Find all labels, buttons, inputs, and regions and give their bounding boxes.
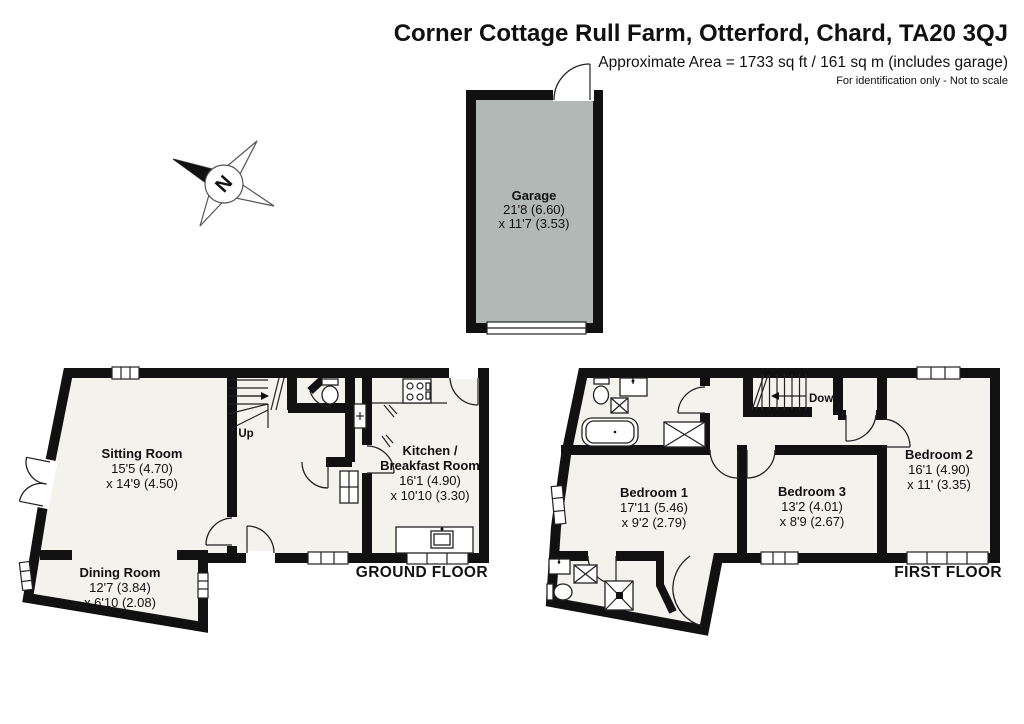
page-title: Corner Cottage Rull Farm, Otterford, Cha… [394, 20, 1008, 47]
garage-main-door [487, 322, 586, 334]
ensuite-shower-icon [605, 581, 633, 610]
bathroom-basin-icon [620, 378, 647, 396]
header: Corner Cottage Rull Farm, Otterford, Cha… [394, 20, 1008, 87]
sitting-room-name: Sitting Room [102, 446, 183, 461]
back-door-opening [449, 366, 478, 379]
garage-name: Garage [512, 188, 557, 203]
kitchen-name-line1: Kitchen / [403, 443, 458, 458]
stairs-up-label: Up [238, 428, 253, 440]
sitting-room-dim2: x 14'9 (4.50) [106, 476, 178, 491]
bedroom1-label: Bedroom 1 17'11 (5.46) x 9'2 (2.79) [620, 485, 688, 530]
kitchen-name-line2: Breakfast Room [380, 458, 480, 473]
garage-dim2: x 11'7 (3.53) [499, 216, 570, 231]
garage-side-door-opening [553, 88, 594, 101]
dining-room-name: Dining Room [80, 565, 161, 580]
kitchen-dim2: x 10'10 (3.30) [390, 488, 469, 503]
dining-window-right [198, 573, 208, 598]
bedroom3-label: Bedroom 3 13'2 (4.01) x 8'9 (2.67) [778, 484, 846, 529]
floorplan-page: Corner Cottage Rull Farm, Otterford, Cha… [0, 0, 1024, 724]
kitchen-window [407, 552, 468, 564]
wc-toilet-icon [322, 379, 338, 404]
bedroom1-name: Bedroom 1 [620, 485, 688, 500]
bedroom2-window-top [917, 367, 960, 379]
kitchen-dim1: 16'1 (4.90) [399, 473, 461, 488]
airing-cupboard-icon [664, 422, 705, 447]
disclaimer-note: For identification only - Not to scale [836, 75, 1008, 87]
bedroom3-dim2: x 8'9 (2.67) [780, 514, 845, 529]
dining-room-dim2: x 6'10 (2.08) [84, 595, 156, 610]
ensuite-basin-icon [549, 559, 570, 574]
sitting-room-window [112, 367, 139, 379]
first-floor-plan: Bedroom 1 17'11 (5.46) x 9'2 (2.79) Bedr… [547, 367, 1002, 630]
floorplan-drawing: Corner Cottage Rull Farm, Otterford, Cha… [0, 0, 1024, 724]
bedroom2-name: Bedroom 2 [905, 447, 973, 462]
garage-plan: Garage 21'8 (6.60) x 11'7 (3.53) [471, 64, 598, 334]
bedroom2-label: Bedroom 2 16'1 (4.90) x 11' (3.35) [905, 447, 973, 492]
dining-wall-stub-right [177, 550, 208, 560]
stairs-down-label: Down [809, 393, 840, 405]
ground-floor-plan: Sitting Room 15'5 (4.70) x 14'9 (4.50) D… [19, 366, 488, 627]
dining-room-label: Dining Room 12'7 (3.84) x 6'10 (2.08) [80, 565, 161, 610]
bathtub-icon [582, 418, 638, 446]
ensuite-toilet-icon [547, 584, 572, 600]
bathroom-toilet-icon [594, 378, 610, 404]
bedroom3-dim1: 13'2 (4.01) [781, 499, 843, 514]
front-door-opening [246, 551, 275, 564]
ensuite-cupboard-icon [574, 565, 597, 583]
bedroom1-dim2: x 9'2 (2.79) [622, 515, 687, 530]
bedroom1-dim1: 17'11 (5.46) [620, 500, 688, 515]
hall-cupboard-icon [354, 404, 366, 428]
sitting-room-label: Sitting Room 15'5 (4.70) x 14'9 (4.50) [102, 446, 183, 491]
compass-rose-icon: N [173, 141, 274, 226]
sitting-room-dim1: 15'5 (4.70) [111, 461, 173, 476]
hall-shelving-icon [340, 471, 358, 503]
first-floor-label: FIRST FLOOR [894, 564, 1002, 581]
area-subtitle: Approximate Area = 1733 sq ft / 161 sq m… [598, 54, 1008, 71]
hall-window [308, 552, 348, 564]
kitchen-sink-icon [396, 527, 473, 553]
bedroom3-window [761, 552, 798, 564]
bedroom3-name: Bedroom 3 [778, 484, 846, 499]
bedroom2-dim2: x 11' (3.35) [907, 477, 971, 492]
bedroom2-dim1: 16'1 (4.90) [908, 462, 970, 477]
kitchen-hob-icon [403, 379, 431, 403]
bedroom2-window-bottom [907, 552, 988, 564]
dining-room-dim1: 12'7 (3.84) [89, 580, 151, 595]
garage-dim1: 21'8 (6.60) [503, 202, 565, 217]
bathroom-cabinet-icon [611, 398, 628, 413]
ground-floor-label: GROUND FLOOR [356, 564, 488, 581]
dining-wall-stub-left [40, 550, 72, 560]
